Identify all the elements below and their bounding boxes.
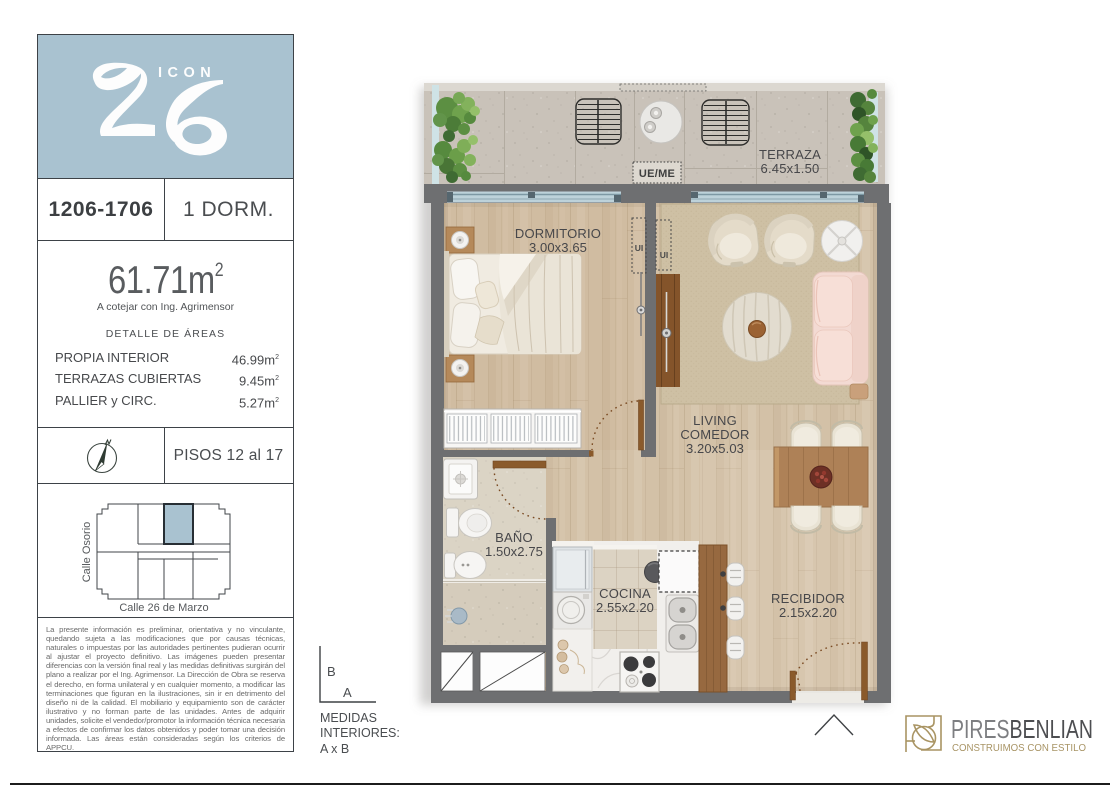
svg-text:COCINA: COCINA [599, 586, 651, 601]
svg-text:UE/ME: UE/ME [639, 168, 675, 180]
svg-text:3.20x5.03: 3.20x5.03 [686, 441, 744, 456]
svg-text:1.50x2.75: 1.50x2.75 [485, 544, 543, 559]
svg-text:TERRAZA: TERRAZA [759, 147, 821, 162]
svg-text:BAÑO: BAÑO [495, 530, 533, 545]
svg-text:DORMITORIO: DORMITORIO [515, 226, 601, 241]
svg-text:UI: UI [635, 243, 644, 253]
svg-text:COMEDOR: COMEDOR [680, 427, 749, 442]
svg-text:RECIBIDOR: RECIBIDOR [771, 591, 845, 606]
svg-text:UI: UI [660, 250, 669, 260]
svg-text:2.15x2.20: 2.15x2.20 [779, 605, 837, 620]
svg-text:2.55x2.20: 2.55x2.20 [596, 600, 654, 615]
svg-text:3.00x3.65: 3.00x3.65 [529, 240, 587, 255]
svg-text:LIVING: LIVING [693, 413, 737, 428]
svg-text:6.45x1.50: 6.45x1.50 [761, 161, 820, 176]
